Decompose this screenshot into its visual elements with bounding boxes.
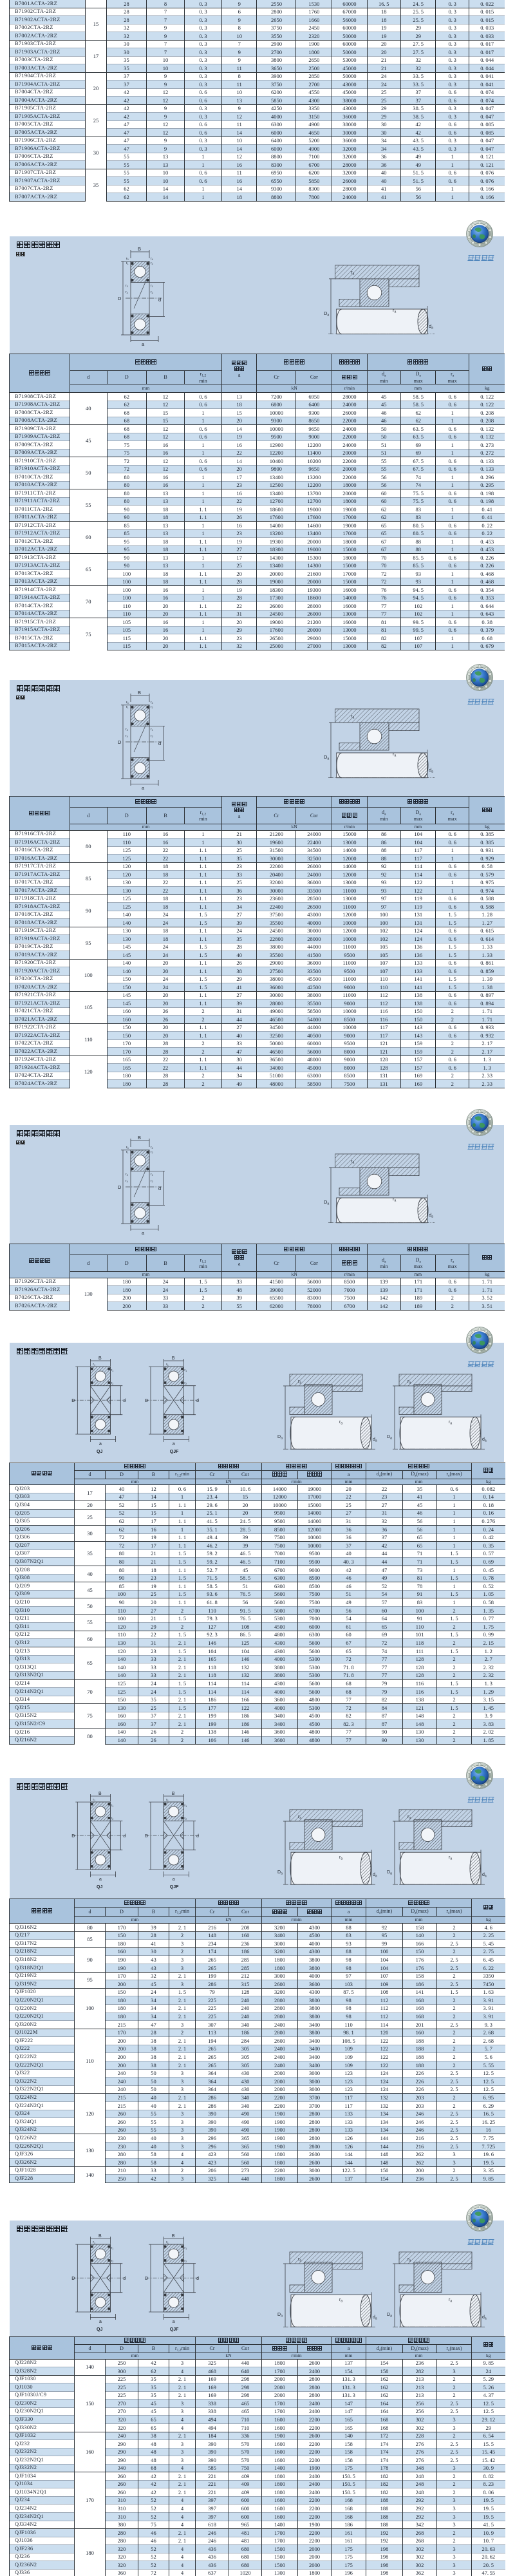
svg-text:r2: r2 (111, 1381, 114, 1385)
svg-text:r1: r1 (111, 1368, 114, 1372)
svg-text:r1: r1 (151, 1173, 153, 1177)
svg-text:a: a (142, 1230, 145, 1236)
svg-text:da: da (429, 323, 433, 330)
svg-text:r2: r2 (111, 1817, 114, 1821)
svg-text:ra: ra (393, 307, 397, 314)
svg-text:r1: r1 (126, 261, 129, 265)
svg-text:da: da (373, 1437, 377, 1443)
svg-text:r1: r1 (93, 2240, 95, 2244)
svg-text:D: D (118, 1184, 122, 1190)
svg-text:B: B (138, 1135, 141, 1141)
svg-text:QJF: QJF (170, 2327, 179, 2332)
svg-text:D: D (145, 1399, 148, 1403)
svg-text:r2: r2 (151, 1150, 153, 1154)
svg-text:Da: Da (387, 1870, 392, 1876)
svg-text:Da: Da (277, 2313, 283, 2318)
svg-text:d: d (196, 1834, 199, 1839)
svg-text:r1: r1 (151, 284, 153, 288)
svg-text:a: a (142, 785, 145, 791)
svg-text:da: da (429, 1212, 433, 1219)
svg-text:r1: r1 (166, 2240, 169, 2244)
svg-text:r1: r1 (111, 2246, 114, 2250)
svg-text:r3: r3 (126, 701, 129, 705)
svg-text:r2: r2 (184, 2259, 187, 2263)
svg-text:r3: r3 (126, 257, 129, 261)
svg-text:r2: r2 (151, 290, 153, 294)
svg-text:r1: r1 (184, 1368, 187, 1372)
svg-text:a: a (99, 1442, 102, 1446)
svg-text:r2: r2 (151, 705, 153, 709)
svg-text:D: D (71, 1399, 75, 1403)
svg-text:D: D (145, 1834, 148, 1839)
svg-text:r2: r2 (151, 734, 153, 738)
svg-text:r4: r4 (126, 734, 128, 738)
svg-text:d: d (196, 1399, 199, 1403)
svg-text:r4: r4 (151, 701, 153, 705)
svg-text:B: B (138, 690, 141, 696)
svg-text:QJ: QJ (97, 2327, 102, 2332)
svg-text:r3: r3 (126, 284, 128, 288)
svg-text:ra: ra (393, 751, 397, 758)
svg-text:r1: r1 (111, 1804, 114, 1808)
svg-text:D: D (145, 2277, 148, 2281)
svg-text:r4: r4 (151, 1146, 153, 1150)
svg-text:d: d (158, 741, 161, 746)
svg-text:r3: r3 (126, 728, 128, 732)
svg-text:B: B (172, 1356, 175, 1361)
svg-text:a: a (99, 2320, 102, 2324)
svg-text:r3: r3 (126, 1146, 129, 1150)
svg-text:a: a (173, 2320, 175, 2324)
svg-text:QJ: QJ (97, 1450, 102, 1454)
svg-text:da: da (482, 2315, 487, 2321)
svg-text:B: B (172, 2234, 175, 2239)
svg-text:QJ: QJ (97, 1885, 102, 1889)
svg-text:d: d (123, 1834, 126, 1839)
svg-text:Da: Da (277, 1870, 283, 1876)
svg-text:r2: r2 (151, 261, 153, 265)
svg-text:r2: r2 (111, 2259, 114, 2263)
svg-text:a: a (142, 341, 145, 347)
svg-text:D: D (71, 2277, 75, 2281)
svg-text:da: da (373, 1873, 377, 1879)
svg-text:a: a (173, 1442, 175, 1446)
svg-text:ra: ra (393, 1196, 397, 1203)
svg-text:r4: r4 (151, 257, 153, 261)
svg-text:r3: r3 (126, 1173, 128, 1177)
svg-text:r2: r2 (184, 1381, 187, 1385)
svg-text:D: D (118, 296, 122, 301)
svg-text:Da: Da (387, 1435, 392, 1441)
svg-text:B: B (172, 1792, 175, 1796)
svg-text:a: a (99, 1877, 102, 1882)
svg-text:a: a (173, 1877, 175, 1882)
svg-text:d: d (123, 2277, 126, 2281)
svg-text:Da: Da (277, 1435, 283, 1441)
svg-text:r1: r1 (93, 1363, 95, 1367)
svg-text:r1: r1 (184, 2246, 187, 2250)
svg-text:QJF: QJF (170, 1450, 179, 1454)
svg-text:d: d (196, 2277, 199, 2281)
svg-text:B: B (98, 1792, 102, 1796)
svg-text:r1: r1 (126, 1150, 129, 1154)
svg-text:r1: r1 (151, 728, 153, 732)
svg-text:B: B (138, 246, 141, 252)
svg-text:r1: r1 (184, 1804, 187, 1808)
svg-text:Da: Da (324, 1199, 329, 1206)
svg-text:r4: r4 (126, 290, 128, 294)
svg-text:D: D (118, 739, 122, 745)
svg-text:Da: Da (324, 310, 329, 317)
svg-text:Da: Da (324, 754, 329, 761)
svg-text:r2: r2 (184, 1817, 187, 1821)
svg-text:d: d (123, 1399, 126, 1403)
svg-text:B: B (98, 2234, 102, 2239)
svg-text:da: da (373, 2315, 377, 2321)
svg-text:da: da (429, 767, 433, 774)
svg-text:D: D (71, 1834, 75, 1839)
svg-text:r2: r2 (151, 1179, 153, 1183)
svg-text:da: da (482, 1873, 487, 1879)
svg-text:r1: r1 (166, 1798, 169, 1802)
svg-text:d: d (158, 1186, 161, 1191)
svg-text:r1: r1 (166, 1363, 169, 1367)
svg-text:B: B (98, 1356, 102, 1361)
svg-text:QJF: QJF (170, 1885, 179, 1889)
svg-text:da: da (482, 1437, 487, 1443)
svg-text:r1: r1 (93, 1798, 95, 1802)
svg-text:Da: Da (387, 2313, 392, 2318)
svg-text:r4: r4 (126, 1179, 128, 1183)
svg-text:d: d (158, 297, 161, 303)
svg-text:r1: r1 (126, 705, 129, 709)
